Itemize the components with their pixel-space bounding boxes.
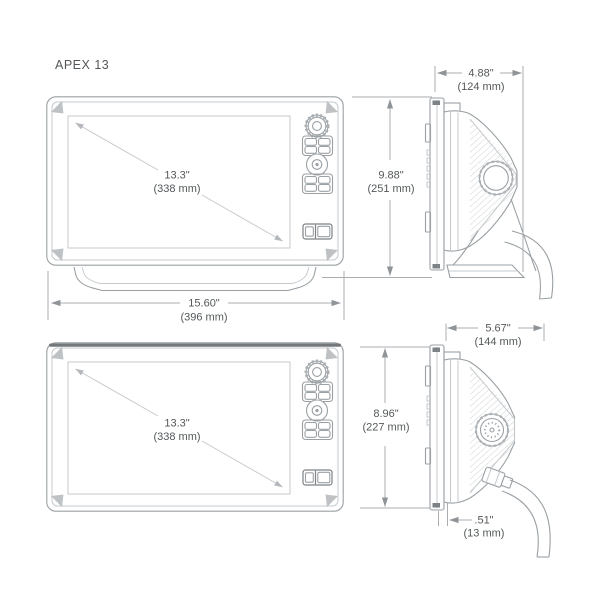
panel-clip: [433, 503, 441, 508]
dimension-diagram: APEX 13 13.3" (338 mm) 13.3" (338 mm): [0, 0, 600, 600]
dim-height-top-mm: (251 mm): [367, 183, 414, 195]
dim-width-mm: (396 mm): [180, 312, 227, 324]
power-cable: [512, 231, 553, 298]
dim-width-in: 15.60": [188, 298, 220, 310]
dim-depth-bottom-in: 5.67": [485, 323, 510, 335]
panel-clip: [433, 264, 441, 269]
diagonal-size-in: 13.3": [164, 170, 189, 182]
cable-connector: [481, 467, 513, 491]
dim-width: 15.60" (396 mm): [48, 271, 344, 324]
front-view-bottom: [47, 343, 343, 511]
dim-height-bottom-in: 8.96": [373, 408, 398, 420]
product-title: APEX 13: [55, 58, 109, 72]
side-view-top: [426, 98, 553, 299]
gimbal-tray: [74, 267, 316, 291]
dim-depth-bottom: 5.67" (144 mm): [446, 323, 544, 349]
dim-depth-bottom-mm: (144 mm): [474, 336, 521, 348]
diagonal-size-in: 13.3": [164, 418, 189, 430]
dim-lip-bottom-mm: (13 mm): [464, 528, 505, 540]
dim-lip-bottom-in: .51": [474, 515, 493, 527]
power-cable: [510, 480, 550, 557]
dim-height-bottom-mm: (227 mm): [362, 422, 409, 434]
panel-clip: [433, 348, 441, 353]
dust-cover-seam: [49, 344, 341, 347]
dim-depth-top-in: 4.88": [468, 68, 493, 80]
front-view-top: [47, 97, 343, 265]
dim-depth-top-mm: (124 mm): [457, 81, 504, 93]
diagonal-size-mm: (338 mm): [153, 183, 200, 195]
dim-lip-bottom: .51" (13 mm): [439, 503, 505, 540]
diagonal-size-mm: (338 mm): [153, 431, 200, 443]
panel-clip: [433, 101, 441, 106]
dim-height-bottom: 8.96" (227 mm): [360, 347, 430, 508]
dimension-diagram-page: APEX 13 13.3" (338 mm) 13.3" (338 mm): [0, 0, 600, 600]
dim-height-top-in: 9.88": [378, 170, 403, 182]
